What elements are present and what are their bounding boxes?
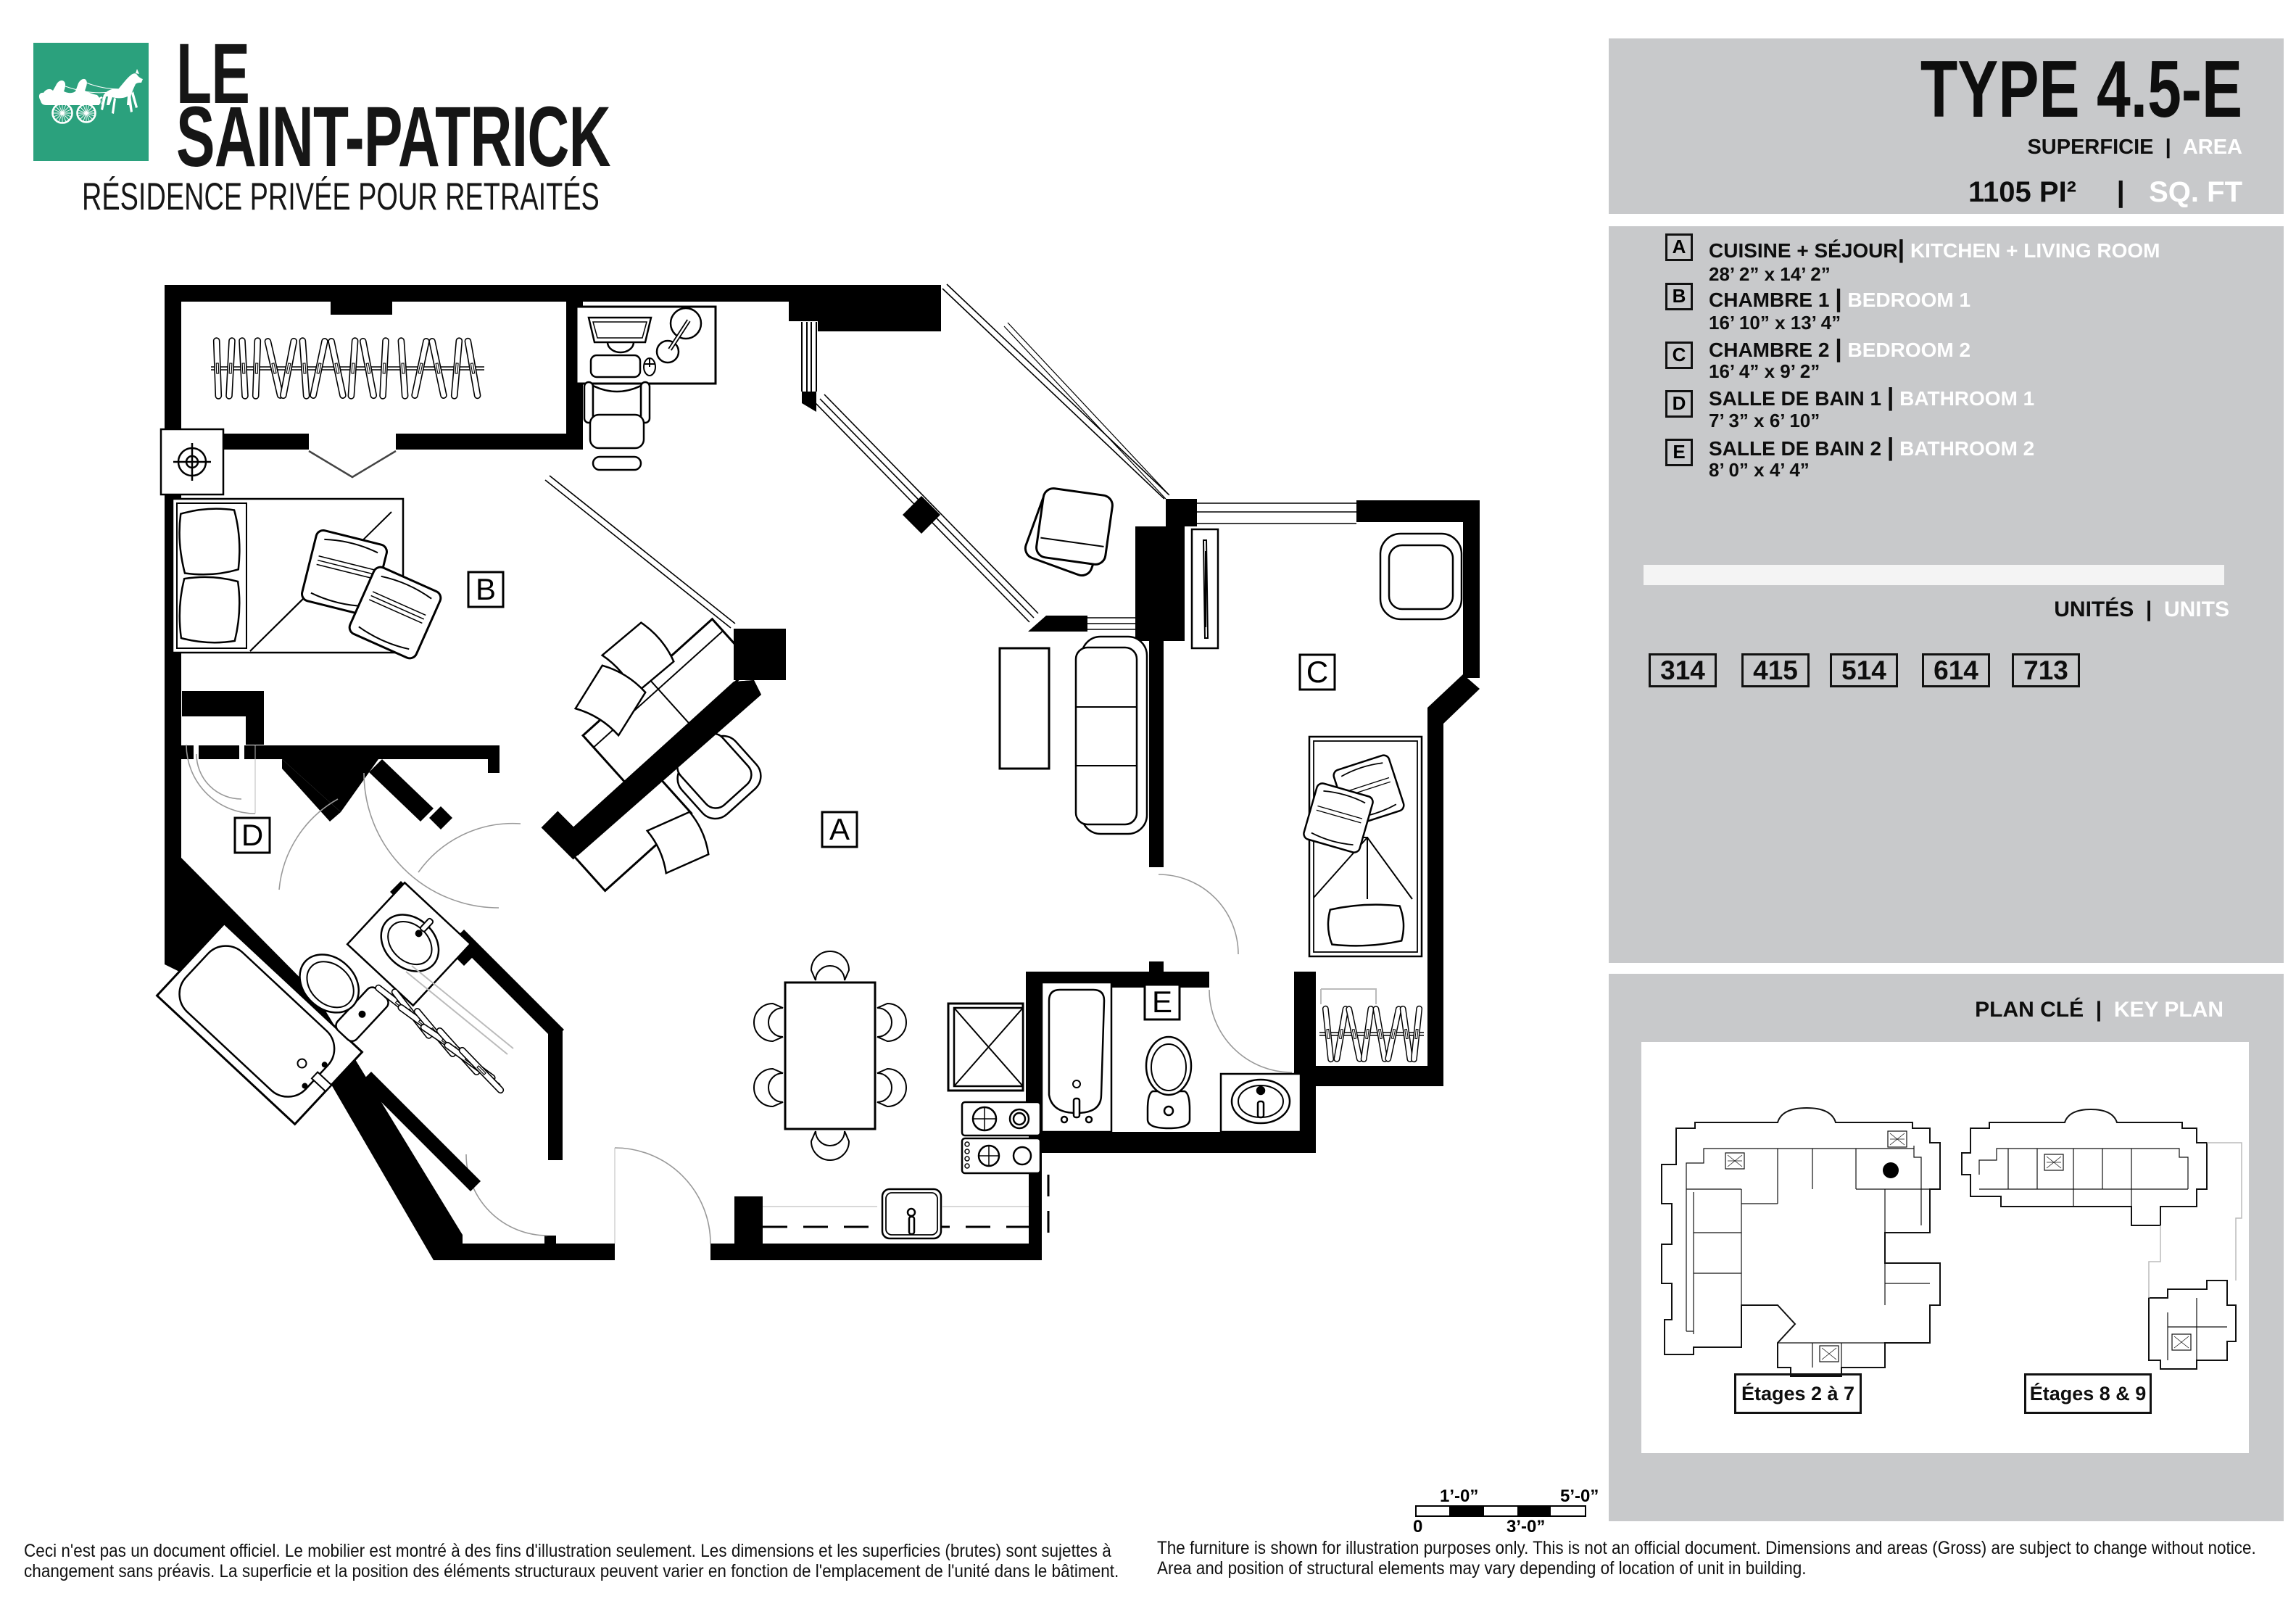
- svg-text:A: A: [829, 812, 850, 846]
- svg-text:D: D: [241, 818, 263, 852]
- svg-text:1’-0”: 1’-0”: [1440, 1486, 1478, 1506]
- svg-text:E: E: [1152, 985, 1172, 1019]
- svg-text:0: 0: [1413, 1517, 1422, 1536]
- svg-text:5’-0”: 5’-0”: [1560, 1486, 1599, 1506]
- svg-text:C: C: [1306, 655, 1328, 689]
- svg-text:B: B: [476, 572, 496, 606]
- svg-text:3’-0”: 3’-0”: [1507, 1517, 1545, 1536]
